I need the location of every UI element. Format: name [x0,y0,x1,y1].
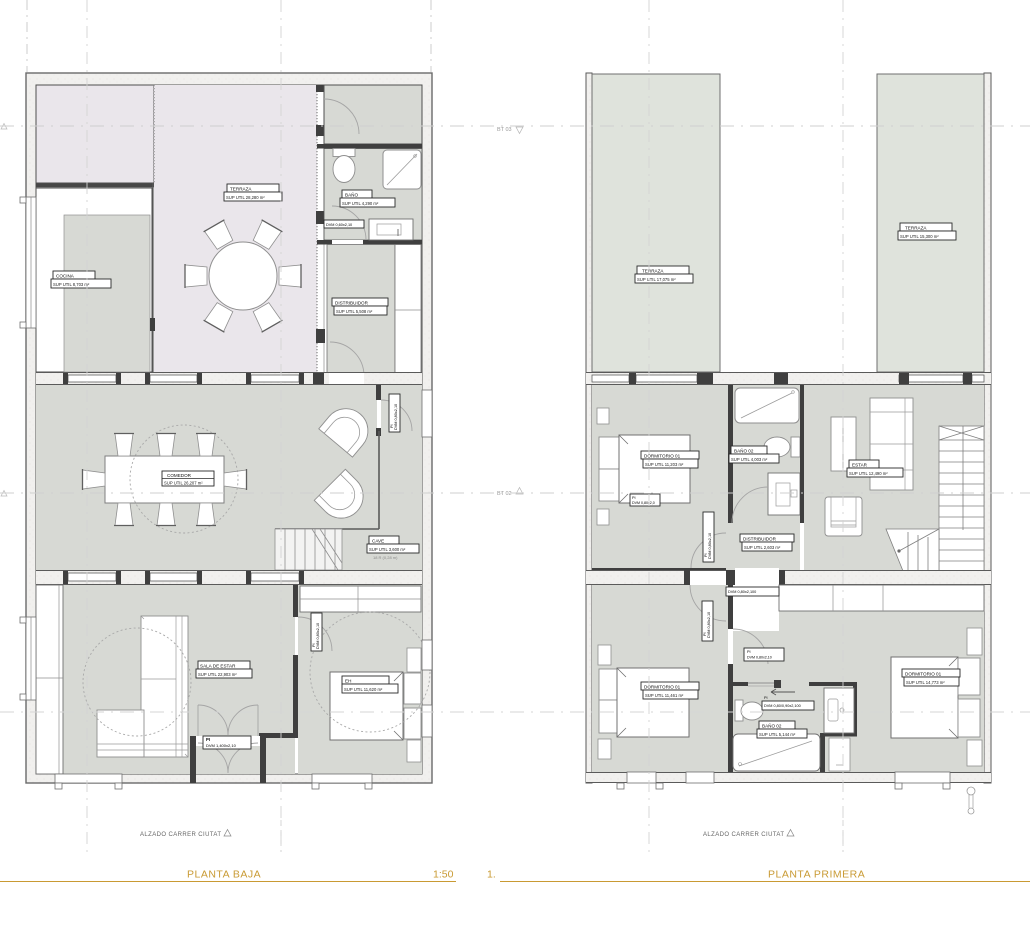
svg-text:SUP UTIL 17,075 m²: SUP UTIL 17,075 m² [637,277,676,282]
svg-text:DORMITORIO 01: DORMITORIO 01 [644,454,681,459]
svg-text:TERRAZA: TERRAZA [642,269,664,274]
svg-text:DVM 0,80x2,100: DVM 0,80x2,100 [728,590,756,594]
svg-text:DVM 0,80x2,0: DVM 0,80x2,0 [632,501,655,505]
svg-text:EH: EH [345,679,351,684]
svg-text:BAÑO 02: BAÑO 02 [762,723,782,729]
svg-text:1.: 1. [487,869,496,881]
svg-text:DISTRIBUIDOR: DISTRIBUIDOR [335,301,369,306]
svg-text:PI: PI [704,553,708,557]
svg-text:PI: PI [390,424,394,428]
svg-text:TERRAZA: TERRAZA [905,226,927,231]
svg-text:DVM 1,400x2,10: DVM 1,400x2,10 [206,743,237,748]
svg-text:PLANTA PRIMERA: PLANTA PRIMERA [768,869,865,881]
svg-text:PI: PI [312,643,316,647]
svg-text:BAÑO 02: BAÑO 02 [734,448,754,454]
svg-text:BT 03: BT 03 [497,127,512,133]
svg-text:SUP UTIL 11,203 m²: SUP UTIL 11,203 m² [645,462,684,467]
svg-text:SUP UTIL 5,144 m²: SUP UTIL 5,144 m² [759,732,796,737]
svg-text:SUP UTIL 3,600 m²: SUP UTIL 3,600 m² [369,547,406,552]
svg-text:SUP UTIL 12,490 m²: SUP UTIL 12,490 m² [849,471,888,476]
svg-text:DVM 0,80x2,10: DVM 0,80x2,10 [707,612,711,638]
svg-text:PI: PI [703,632,707,636]
svg-text:SUP UTIL 4,003 m²: SUP UTIL 4,003 m² [731,457,768,462]
svg-text:SUP UTIL 26,207 m²: SUP UTIL 26,207 m² [164,481,203,486]
svg-text:PI: PI [206,737,210,742]
svg-text:DVM 0,80x2,10: DVM 0,80x2,10 [708,533,712,559]
svg-text:SUP UTIL 8,703 m²: SUP UTIL 8,703 m² [53,282,90,287]
svg-text:ALZADO CARRER CIUTAT: ALZADO CARRER CIUTAT [140,832,221,838]
svg-text:SUP UTIL 28,280 m²: SUP UTIL 28,280 m² [226,195,265,200]
svg-text:SUP UTIL 15,300 m²: SUP UTIL 15,300 m² [900,234,939,239]
svg-text:PLANTA BAJA: PLANTA BAJA [187,869,261,881]
svg-text:SUP UTIL 5,508 m²: SUP UTIL 5,508 m² [336,309,373,314]
svg-text:SUP UTIL 4,290 m²: SUP UTIL 4,290 m² [342,201,379,206]
svg-text:COCINA: COCINA [56,274,75,279]
svg-text:COMEDOR: COMEDOR [167,473,192,478]
svg-text:DVM 0,80x2,10: DVM 0,80x2,10 [747,656,772,660]
svg-text:TERRAZA: TERRAZA [230,187,252,192]
svg-text:CAVE: CAVE [372,539,384,544]
svg-text:DVM 0,60x2,10: DVM 0,60x2,10 [326,223,352,227]
svg-text:SUP UTIL 14,773 m²: SUP UTIL 14,773 m² [906,680,945,685]
svg-text:PI: PI [764,696,768,700]
svg-text:SUP UTIL 2,603 m²: SUP UTIL 2,603 m² [744,545,781,550]
svg-text:SUP UTIL 11,461 m²: SUP UTIL 11,461 m² [645,693,684,698]
svg-text:SUP UTIL 11,620 m²: SUP UTIL 11,620 m² [344,687,383,692]
svg-text:SALA DE ESTAR: SALA DE ESTAR [200,664,236,669]
svg-text:PI: PI [747,650,751,654]
svg-text:DVM 0,80/0,90x2,100: DVM 0,80/0,90x2,100 [764,704,801,708]
svg-text:BAÑO: BAÑO [345,192,358,198]
svg-text:DORMITORIO 01: DORMITORIO 01 [905,672,942,677]
svg-text:BT 02: BT 02 [497,491,512,497]
svg-text:DORMITORIO 01: DORMITORIO 01 [644,685,681,690]
svg-text:ESTAR: ESTAR [852,463,868,468]
svg-text:DVM 0,80x2,10: DVM 0,80x2,10 [316,623,320,649]
svg-text:DVM 0,80x2,10: DVM 0,80x2,10 [394,404,398,430]
svg-text:1:50: 1:50 [433,869,454,881]
svg-text:DISTRIBUIDOR: DISTRIBUIDOR [743,537,777,542]
svg-text:SUP UTIL 22,903 m²: SUP UTIL 22,903 m² [198,672,237,677]
svg-text:PI: PI [632,496,636,500]
svg-text:ALZADO CARRER CIUTAT: ALZADO CARRER CIUTAT [703,832,784,838]
svg-text:18 R (0,28 m): 18 R (0,28 m) [373,555,398,560]
